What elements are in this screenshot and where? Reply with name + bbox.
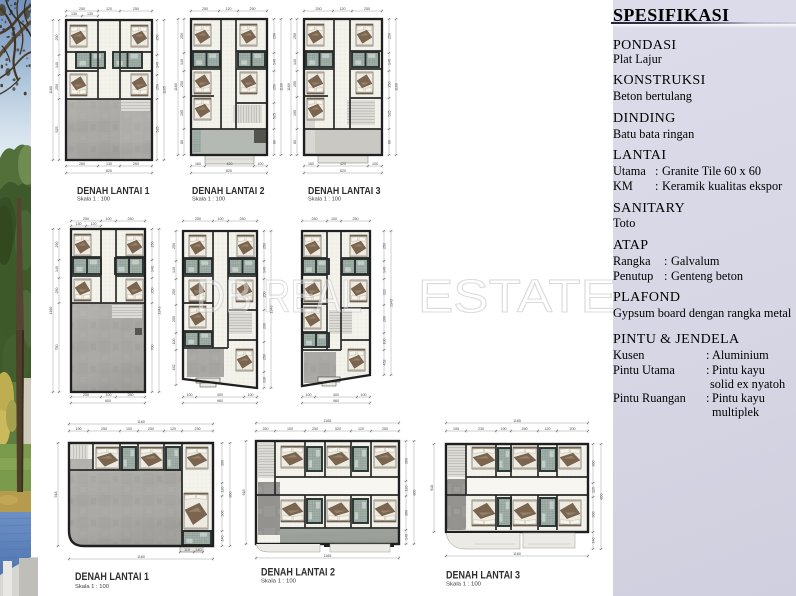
svg-text:REAL: REAL bbox=[263, 270, 362, 322]
svg-text:DB: DB bbox=[196, 270, 252, 322]
svg-text:ESTATE: ESTATE bbox=[418, 270, 616, 322]
